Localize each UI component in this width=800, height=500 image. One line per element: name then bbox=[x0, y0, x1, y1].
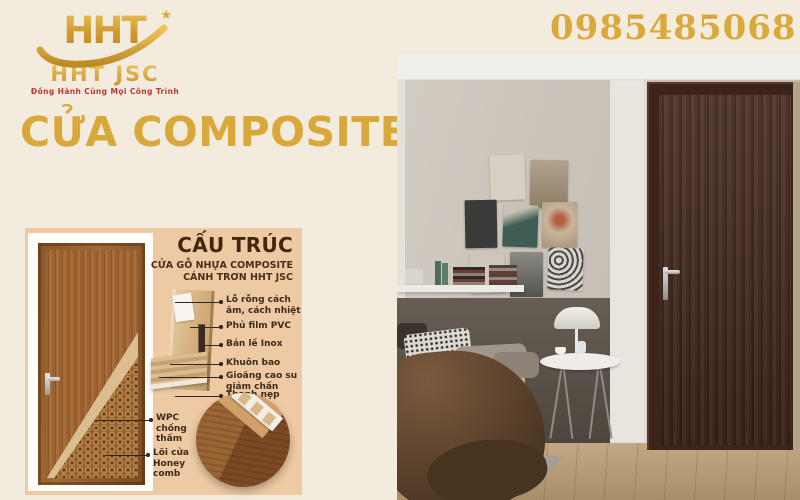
cup bbox=[555, 347, 566, 354]
wall-photo bbox=[547, 247, 583, 290]
leader-line bbox=[159, 377, 219, 378]
door-edge-highlight bbox=[793, 82, 800, 450]
leader-line bbox=[105, 455, 146, 456]
logo-star-icon: ★ bbox=[160, 8, 172, 23]
bullet-dot bbox=[219, 300, 223, 304]
bullet-dot bbox=[219, 375, 223, 379]
logo-brand-text: HHT bbox=[54, 8, 154, 54]
door-handle-lever bbox=[665, 270, 680, 274]
shelf-book bbox=[435, 261, 441, 285]
door-core-inset-photo bbox=[196, 393, 290, 487]
diagram-subtitle-line2: CÁNH TRƠN HHT JSC bbox=[151, 272, 293, 284]
diagram-label: Phủ film PVC bbox=[226, 321, 302, 332]
bullet-dot bbox=[219, 325, 223, 329]
cross-section-label-sticker bbox=[172, 293, 195, 322]
diagram-label: Khuôn bao bbox=[226, 358, 302, 369]
wall-photo bbox=[465, 200, 498, 249]
bullet-dot bbox=[219, 362, 223, 366]
bedroom-side-wall bbox=[397, 79, 405, 309]
wall-photo bbox=[542, 202, 577, 247]
hht-logo: HHT ★ HHT JSC Đồng Hành Cùng Mọi Công Tr… bbox=[30, 6, 180, 106]
leader-line bbox=[175, 302, 219, 303]
shelf-book bbox=[442, 263, 448, 285]
structure-diagram-panel: CẤU TRÚC CỬA GỖ NHỰA COMPOSITE CÁNH TRƠN… bbox=[25, 228, 302, 495]
diagram-door-handle-lever bbox=[47, 377, 60, 381]
leader-line bbox=[201, 345, 219, 346]
wall-photo bbox=[502, 204, 538, 247]
shelf-book-stack bbox=[453, 267, 485, 285]
vase bbox=[577, 341, 586, 354]
diagram-label: Bản lề Inox bbox=[226, 339, 302, 350]
promo-poster: HHT ★ HHT JSC Đồng Hành Cùng Mọi Công Tr… bbox=[0, 0, 800, 500]
wall-photo bbox=[489, 154, 526, 200]
page-title: CỬA COMPOSITE bbox=[20, 108, 408, 156]
leader-line bbox=[170, 364, 219, 365]
diagram-door-leaf bbox=[45, 250, 138, 478]
phone-number: 0985485068 bbox=[550, 8, 790, 48]
leader-line bbox=[190, 327, 219, 328]
logo-tagline: Đồng Hành Cùng Mọi Công Trình bbox=[30, 87, 180, 96]
bullet-dot bbox=[146, 453, 150, 457]
side-table bbox=[540, 353, 620, 370]
diagram-door-image bbox=[28, 233, 153, 491]
diagram-title: CẤU TRÚC bbox=[177, 233, 293, 257]
diagram-subtitle: CỬA GỖ NHỰA COMPOSITE CÁNH TRƠN HHT JSC bbox=[151, 260, 293, 284]
bedroom-ceiling bbox=[397, 55, 800, 80]
logo-mark: HHT ★ bbox=[30, 6, 180, 66]
diagram-label: Lỗ rỗng cách âm, cách nhiệt bbox=[226, 295, 302, 316]
wall-column bbox=[610, 79, 647, 443]
shelf-box bbox=[405, 269, 423, 284]
leader-line bbox=[97, 420, 149, 421]
bedroom-photo bbox=[397, 55, 800, 500]
diagram-label: Gioăng cao su giảm chấn bbox=[226, 371, 306, 392]
bullet-dot bbox=[149, 418, 153, 422]
diagram-door-frame bbox=[38, 243, 145, 485]
bullet-dot bbox=[219, 343, 223, 347]
shelf-book-stack bbox=[489, 265, 517, 285]
wall-shelf bbox=[397, 285, 524, 292]
diagram-subtitle-line1: CỬA GỖ NHỰA COMPOSITE bbox=[151, 260, 293, 272]
